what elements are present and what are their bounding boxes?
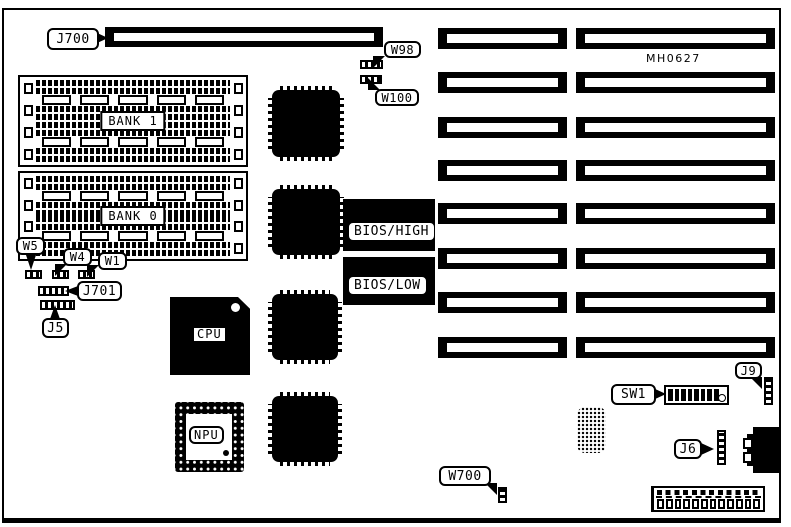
- qfp-chip-2: [272, 189, 340, 255]
- tail-w5: [26, 255, 36, 270]
- memory-bank-0: BANK 0: [18, 171, 248, 261]
- tail-w1: [87, 265, 99, 277]
- label-j700: J700: [47, 28, 99, 50]
- expansion-slot: [576, 28, 775, 49]
- power-connector-divider: [656, 496, 761, 498]
- label-cpu: CPU: [192, 326, 227, 343]
- power-connector: [651, 486, 765, 512]
- label-w5: W5: [16, 237, 45, 255]
- npu-socket-center: NPU: [186, 414, 232, 460]
- tail-j5: [50, 305, 60, 319]
- power-connector-tabs: [657, 490, 760, 495]
- expansion-slot: [438, 160, 567, 181]
- crystal-component: [577, 407, 606, 453]
- expansion-slot: [438, 248, 567, 269]
- dip-switch-sw1: [664, 385, 729, 405]
- label-w98: W98: [384, 41, 421, 58]
- expansion-slot: [576, 337, 775, 358]
- jumper-w5: [25, 270, 42, 279]
- expansion-slot: [576, 248, 775, 269]
- qfp-chip-4: [272, 396, 338, 462]
- dip-switch-segment: [688, 389, 693, 401]
- motherboard-diagram: J700 W98 W100 BANK 1 BANK 0: [0, 0, 791, 527]
- dip-switch-segment: [668, 389, 673, 401]
- expansion-slot: [576, 160, 775, 181]
- dip-switch-segment: [681, 389, 686, 401]
- dip-switch-segment: [701, 389, 706, 401]
- tail-w100: [368, 78, 380, 90]
- tail-j6: [701, 443, 714, 455]
- dip-switch-segment: [675, 389, 680, 401]
- bank1-left-brackets: [20, 77, 36, 165]
- cpu-pin1-dot: [231, 303, 240, 312]
- dip-switch-segment: [707, 389, 712, 401]
- keyboard-connector-pin: [743, 452, 753, 463]
- dip-switch-segment: [721, 389, 726, 401]
- ram-chip-outline-row: [36, 137, 230, 147]
- ram-row: [36, 148, 230, 162]
- label-bios-low: BIOS/LOW: [348, 276, 427, 295]
- slot-j700: [105, 27, 383, 47]
- label-j5: J5: [42, 318, 69, 338]
- bios-low-chip: BIOS/LOW: [343, 257, 435, 305]
- part-number: MH0627: [646, 52, 701, 65]
- ram-chip-outline-row: [36, 191, 230, 201]
- label-npu: NPU: [189, 426, 224, 444]
- label-bios-high: BIOS/HIGH: [348, 222, 435, 241]
- label-j6: J6: [674, 439, 702, 459]
- memory-bank-1: BANK 1: [18, 75, 248, 167]
- qfp-chip-1: [272, 90, 340, 157]
- header-j6: [717, 430, 726, 465]
- dip-switch-segment: [694, 389, 699, 401]
- label-w4: W4: [63, 248, 92, 266]
- expansion-slot: [438, 28, 567, 49]
- ram-row: [36, 176, 230, 190]
- expansion-slot: [576, 72, 775, 93]
- qfp-chip-3: [272, 294, 338, 360]
- bank0-right-brackets: [230, 173, 246, 259]
- cpu-chip: CPU: [170, 297, 250, 375]
- expansion-slot: [438, 292, 567, 313]
- label-bank1: BANK 1: [100, 111, 165, 131]
- label-bank0: BANK 0: [100, 206, 165, 226]
- label-w100: W100: [375, 89, 419, 106]
- expansion-slot: [438, 203, 567, 224]
- label-w700: W700: [439, 466, 491, 486]
- jumper-w700: [498, 487, 507, 503]
- label-j701: J701: [77, 281, 122, 301]
- label-w1: W1: [98, 252, 127, 270]
- header-j9: [764, 377, 773, 405]
- label-j9: J9: [735, 362, 762, 379]
- tail-w98: [373, 56, 385, 68]
- label-sw1: SW1: [611, 384, 656, 405]
- ram-chip-outline-row: [36, 95, 230, 105]
- ram-row: [36, 80, 230, 94]
- expansion-slot: [438, 72, 567, 93]
- npu-pin1-dot: [223, 450, 229, 456]
- npu-socket: NPU: [175, 402, 244, 472]
- tail-w4: [55, 264, 67, 276]
- keyboard-connector: [753, 427, 781, 473]
- expansion-slot: [438, 117, 567, 138]
- bank1-right-brackets: [230, 77, 246, 165]
- expansion-slot: [576, 117, 775, 138]
- power-connector-pins: [657, 499, 760, 509]
- ram-chip-outline-row: [36, 231, 230, 241]
- keyboard-connector-pin: [743, 438, 753, 449]
- expansion-slot: [576, 203, 775, 224]
- expansion-slot: [576, 292, 775, 313]
- expansion-slot: [438, 337, 567, 358]
- bios-high-chip: BIOS/HIGH: [343, 199, 435, 251]
